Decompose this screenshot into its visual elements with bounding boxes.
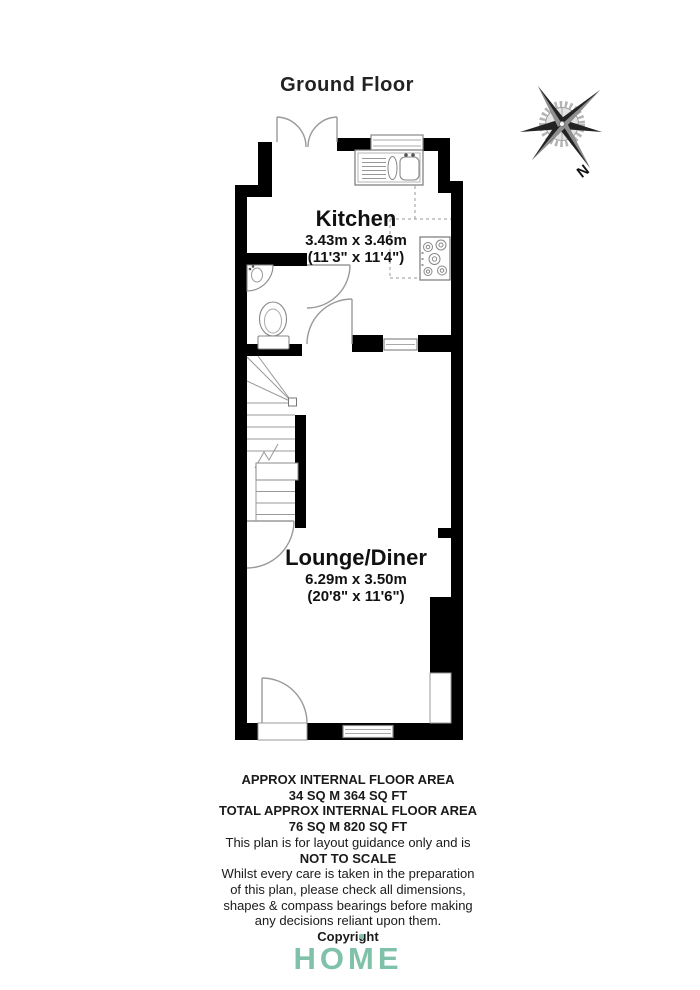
wc-door bbox=[307, 265, 350, 308]
wall-divider-right bbox=[418, 335, 463, 352]
logo-m-dot bbox=[359, 934, 364, 939]
tap-icon bbox=[252, 265, 255, 268]
kitchen-door bbox=[307, 299, 352, 344]
sink-unit bbox=[355, 150, 423, 185]
logo-letter-m-glyph: M bbox=[348, 941, 378, 976]
wall-top-right bbox=[438, 138, 450, 188]
toilet bbox=[258, 302, 289, 349]
corner-basin bbox=[247, 265, 273, 291]
floorplan-page: Ground Floor bbox=[0, 0, 700, 990]
disclaimer-line-1: Whilst every care is taken in the prepar… bbox=[0, 866, 696, 882]
footer-disclaimer: APPROX INTERNAL FLOOR AREA 34 SQ M 364 S… bbox=[0, 772, 696, 945]
lounge-dims-imperial: (20'8" x 11'6") bbox=[307, 588, 404, 605]
disclaimer-line-2: of this plan, please check all dimension… bbox=[0, 882, 696, 898]
total-floor-area-heading: TOTAL APPROX INTERNAL FLOOR AREA bbox=[0, 803, 696, 819]
disclaimer-line-3: shapes & compass bearings before making bbox=[0, 898, 696, 914]
front-door-opening bbox=[258, 723, 307, 740]
kitchen-dims-imperial: (11'3" x 11'4") bbox=[308, 249, 404, 266]
tap-icon bbox=[404, 153, 408, 157]
logo-text-e: E bbox=[378, 941, 403, 976]
kitchen-dims-metric: 3.43m x 3.46m bbox=[305, 232, 407, 249]
floor-area-heading: APPROX INTERNAL FLOOR AREA bbox=[0, 772, 696, 788]
kitchen-window bbox=[371, 135, 423, 151]
front-door bbox=[262, 678, 307, 723]
wall-left bbox=[235, 185, 247, 740]
wc-fixtures bbox=[247, 265, 289, 349]
lounge-window bbox=[343, 726, 393, 738]
tap-icon bbox=[249, 268, 252, 271]
wall-right bbox=[451, 181, 463, 737]
floor-area-value: 34 SQ M 364 SQ FT bbox=[0, 788, 696, 804]
alcove-recess bbox=[430, 673, 451, 723]
guidance-line: This plan is for layout guidance only an… bbox=[0, 835, 696, 851]
hob bbox=[420, 237, 450, 280]
newel-post bbox=[289, 398, 297, 406]
lounge-label: Lounge/Diner bbox=[285, 545, 427, 570]
tap-icon bbox=[411, 153, 415, 157]
not-to-scale-line: NOT TO SCALE bbox=[0, 851, 696, 867]
disclaimer-line-4: any decisions reliant upon them. bbox=[0, 913, 696, 929]
french-doors bbox=[277, 117, 337, 147]
kitchen-label: Kitchen bbox=[316, 206, 397, 231]
logo-text-ho: HO bbox=[293, 941, 348, 976]
wall-wc-top bbox=[247, 253, 307, 266]
stair-landing bbox=[256, 463, 298, 480]
staircase bbox=[247, 356, 298, 521]
total-floor-area-value: 76 SQ M 820 SQ FT bbox=[0, 819, 696, 835]
wall-divider-left bbox=[352, 335, 383, 352]
divider-window bbox=[384, 339, 417, 350]
logo-letter-m: M bbox=[348, 941, 378, 977]
lounge-dims-metric: 6.29m x 3.50m bbox=[305, 571, 407, 588]
chimney-breast bbox=[430, 597, 452, 673]
wall-stub-right bbox=[438, 528, 452, 538]
home-logo: HOME bbox=[0, 941, 696, 977]
